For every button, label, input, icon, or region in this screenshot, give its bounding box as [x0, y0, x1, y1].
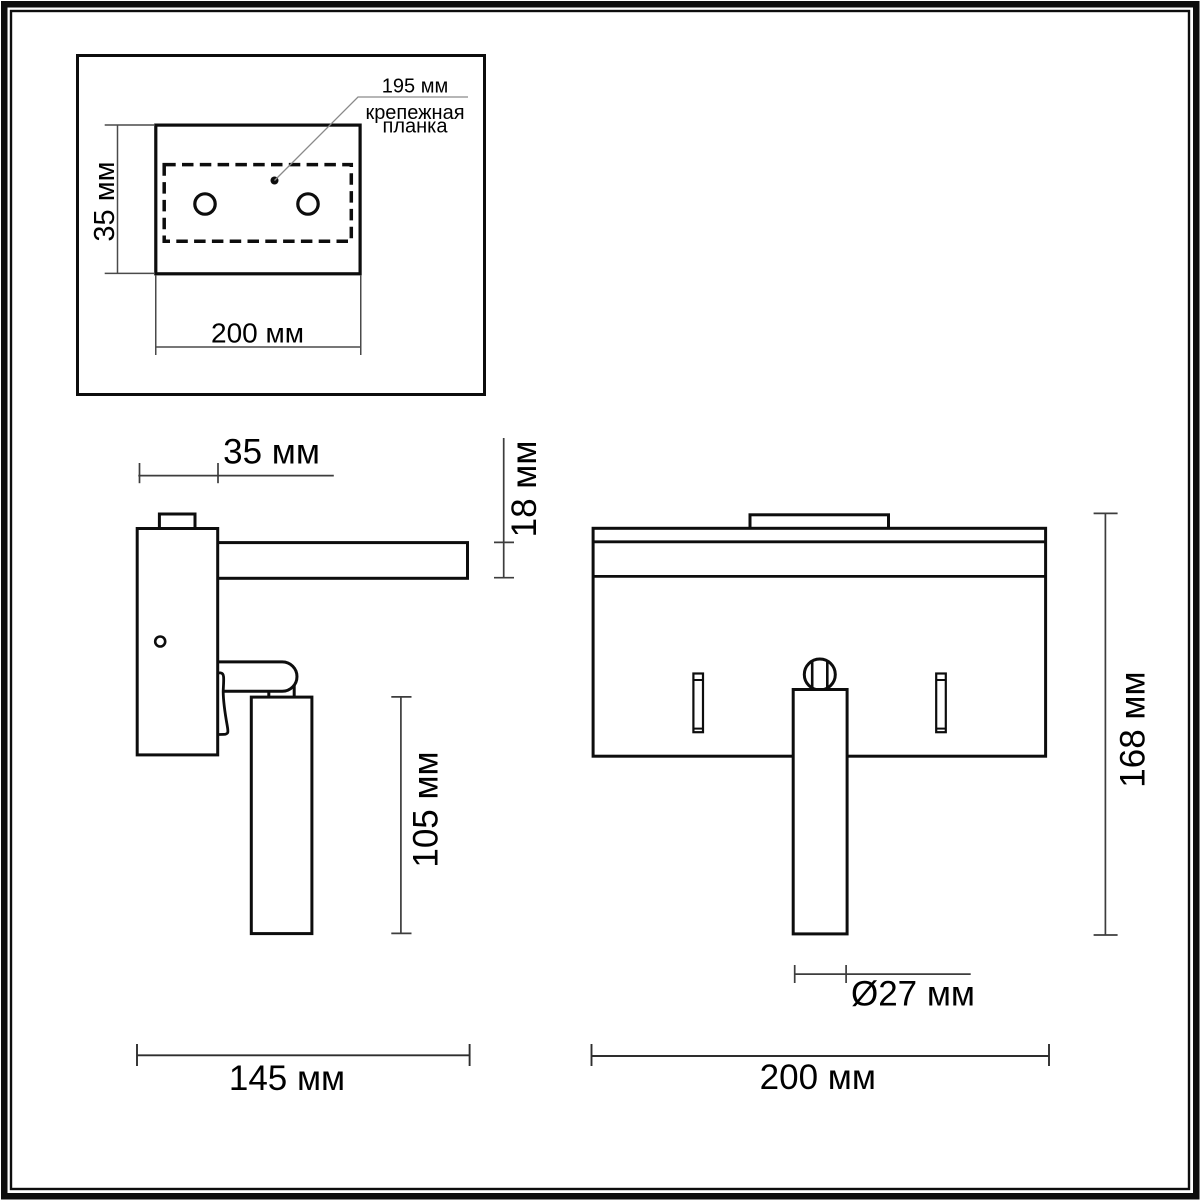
svg-text:35 мм: 35 мм	[223, 433, 320, 472]
svg-text:Ø27 мм: Ø27 мм	[851, 974, 975, 1013]
svg-text:105 мм: 105 мм	[407, 751, 446, 867]
svg-text:145 мм: 145 мм	[229, 1059, 345, 1098]
svg-text:195 мм: 195 мм	[382, 76, 448, 98]
svg-text:200 мм: 200 мм	[760, 1058, 876, 1097]
svg-text:18 мм: 18 мм	[505, 441, 544, 538]
svg-text:200 мм: 200 мм	[211, 318, 304, 349]
svg-text:планка: планка	[383, 116, 449, 138]
svg-text:168 мм: 168 мм	[1114, 671, 1153, 787]
svg-text:35 мм: 35 мм	[89, 161, 121, 241]
